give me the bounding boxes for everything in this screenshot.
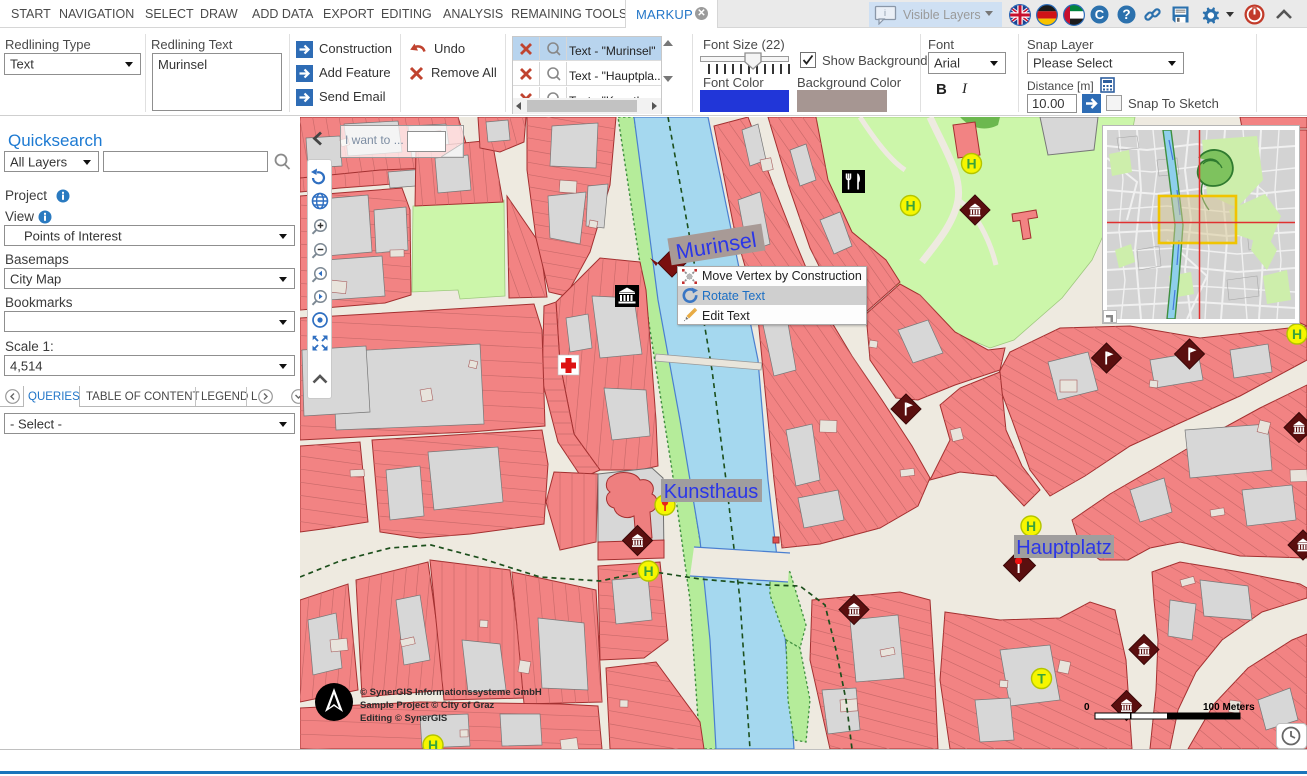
- svg-text:Hauptplatz: Hauptplatz: [1016, 537, 1112, 559]
- svg-text:i: i: [884, 8, 886, 18]
- svg-text:Editing © SynerGIS: Editing © SynerGIS: [360, 713, 447, 724]
- svg-text:100 Meters: 100 Meters: [1203, 702, 1255, 713]
- svg-text:T: T: [1037, 671, 1046, 687]
- svg-text:0: 0: [1084, 702, 1090, 713]
- svg-text:C: C: [1095, 7, 1105, 22]
- svg-text:Sample Project © City of Graz: Sample Project © City of Graz: [360, 700, 494, 711]
- svg-text:H: H: [905, 198, 915, 214]
- svg-text:© SynerGIS Informationssysteme: © SynerGIS Informationssysteme GmbH: [360, 687, 542, 698]
- svg-text:?: ?: [1122, 7, 1130, 22]
- svg-text:H: H: [643, 563, 653, 579]
- svg-text:H: H: [1026, 518, 1036, 534]
- svg-text:Kunsthaus: Kunsthaus: [664, 481, 759, 503]
- svg-text:H: H: [1292, 326, 1302, 342]
- svg-text:H: H: [966, 156, 976, 172]
- svg-text:H: H: [428, 737, 438, 749]
